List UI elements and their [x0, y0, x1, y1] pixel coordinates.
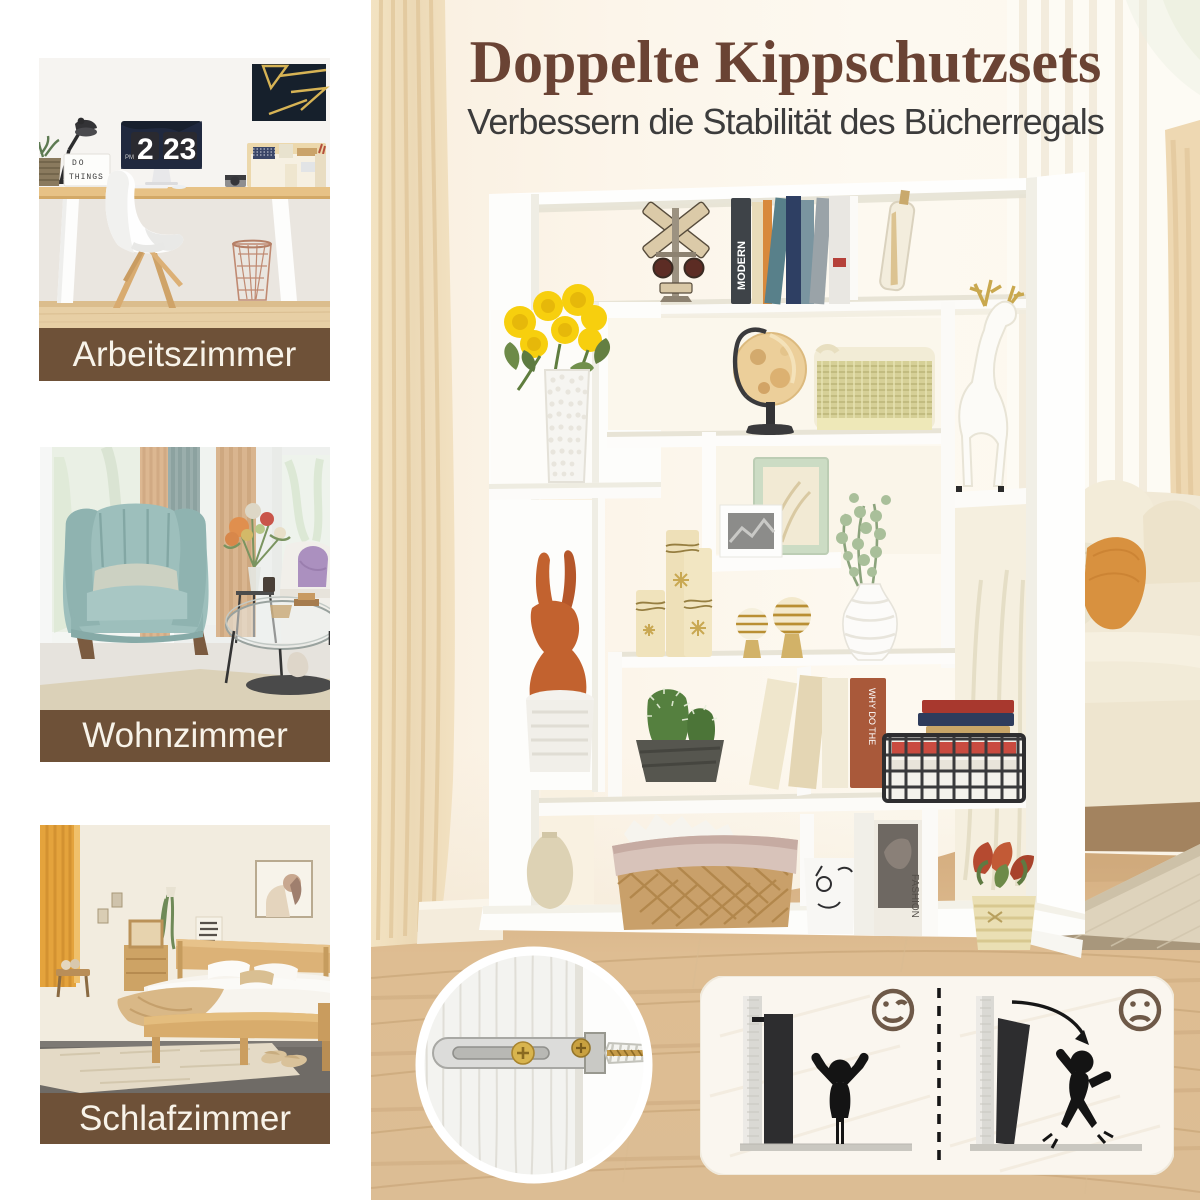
- svg-text:DO: DO: [72, 159, 86, 168]
- svg-text:23: 23: [163, 133, 196, 166]
- svg-text:FASHION: FASHION: [909, 874, 920, 918]
- svg-text:2: 2: [137, 133, 154, 166]
- svg-text:PM: PM: [125, 155, 134, 161]
- svg-text:MODERN: MODERN: [736, 241, 748, 290]
- svg-text:THINGS: THINGS: [69, 173, 104, 182]
- svg-text:WHY DO THE: WHY DO THE: [867, 688, 877, 745]
